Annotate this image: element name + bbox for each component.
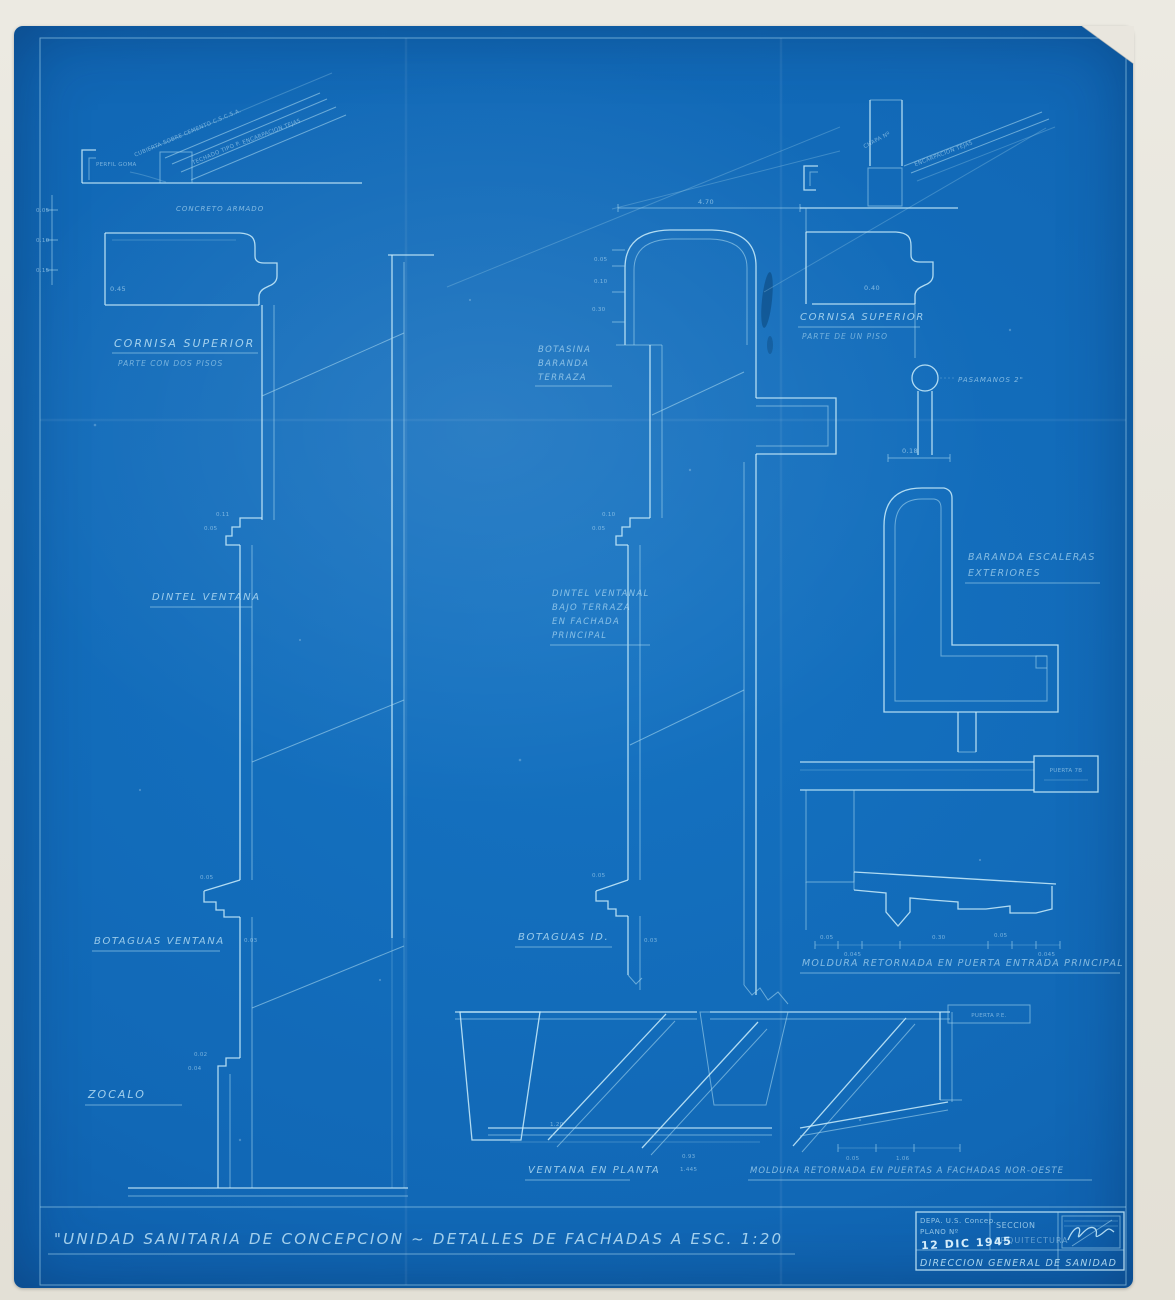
detail-title: DINTEL VENTANA [152,592,261,603]
dimension: 0.40 [864,284,880,292]
detail-stair-rail: BARANDA ESCALERAS EXTERIORES [884,488,1100,752]
detail-title: BARANDA ESCALERAS [968,552,1096,563]
dimension: 0.02 [194,1052,207,1058]
dimension: 0.03 [644,938,658,944]
detail-base-left: 0.02 0.04 ZOCALO [85,1052,408,1196]
detail-title: BOTAGUAS VENTANA [94,936,225,947]
detail-title: BOTAGUAS ID. [518,932,609,943]
dimension: 0.05 [592,873,606,879]
detail-title: BARANDA [538,359,589,369]
detail-handrail: PASAMANOS 2" 0.18 [888,304,1024,462]
roof-note: TECHADO TIPO P. [191,141,242,167]
roof-note: ENCARPACION TEJAS [914,140,974,168]
section-label: SECCION [996,1221,1035,1230]
dimension: 0.11 [216,512,229,518]
dimension: 0.93 [682,1154,696,1160]
dimension: 0.05 [592,526,606,532]
drawing-svg: CUBIERTA SOBRE CEMENTO C.S.C.S.A. TECHAD… [0,0,1175,1300]
dimension: 0.05 [994,933,1008,939]
detail-title: BOTASINA [538,345,591,355]
detail-door-molding: PUERTA 7B 0.05 0.045 0.30 0.05 0.045 MOL… [800,756,1124,973]
roof-note: CHAPA Nº [862,130,891,150]
detail-cornice-right: CHAPA Nº ENCARPACION TEJAS 0.40 CORNISA … [798,100,1055,341]
dimension: 4.70 [698,198,714,206]
paper-folds [40,38,1126,1285]
detail-title: VENTANA EN PLANTA [528,1165,660,1176]
dimension: 0.45 [110,285,126,293]
dimension: 1.445 [680,1167,697,1173]
drawing-title: "UNIDAD SANITARIA DE CONCEPCION ~ DETALL… [54,1230,784,1248]
dimension: 0.15 [36,268,50,274]
detail-title: EN FACHADA [552,617,620,627]
paper-corner-cut [1082,26,1134,64]
detail-lintel-left: 0.11 0.05 DINTEL VENTANA [150,512,262,880]
dimension: 0.03 [244,938,258,944]
detail-sill-left: 0.05 0.03 BOTAGUAS VENTANA [92,875,258,1058]
detail-nw-molding: PUERTA P.E. 0.05 1.06 MOLDURA RETORNADA … [748,1005,1092,1180]
dimension: 1.06 [896,1156,910,1162]
detail-title: EXTERIORES [968,568,1041,579]
organization: DIRECCION GENERAL DE SANIDAD [920,1258,1118,1269]
detail-subtitle: PARTE CON DOS PISOS [118,359,223,368]
detail-title: PRINCIPAL [552,631,607,641]
dimension: 0.10 [594,279,608,285]
door-tag: PUERTA 7B [1050,768,1083,774]
sheet-border [40,38,1126,1285]
detail-window-plan: 1.20 0.93 1.445 VENTANA EN PLANTA [455,1012,950,1180]
section-value: ARQUITECTURA [994,1236,1069,1245]
dimension: 0.05 [36,208,50,214]
department: DEPA. U.S. Concep. [920,1217,996,1225]
detail-title: CORNISA SUPERIOR [800,312,925,323]
door-tag: PUERTA P.E. [971,1013,1006,1019]
plan-number: PLANO Nº [920,1228,959,1236]
detail-title: TERRAZA [538,373,587,383]
blueprint-scan: CUBIERTA SOBRE CEMENTO C.S.C.S.A. TECHAD… [0,0,1175,1300]
detail-title: DINTEL VENTANAL [552,589,650,599]
sheet-title: "UNIDAD SANITARIA DE CONCEPCION ~ DETALL… [54,1230,784,1248]
dimension: 0.05 [820,935,834,941]
detail-lintel-mid: DINTEL VENTANAL BAJO TERRAZA EN FACHADA … [550,589,650,645]
gutter-label: PERFIL GOMA [96,162,137,168]
paper-specks [94,299,1082,1141]
dimension: 0.05 [846,1156,860,1162]
title-block: DEPA. U.S. Concep. PLANO Nº 12 DIC 1945 … [916,1212,1124,1270]
dimension: 0.18 [902,447,918,455]
dimension: 0.30 [592,307,606,313]
handrail-label: PASAMANOS 2" [958,376,1024,384]
detail-title: MOLDURA RETORNADA EN PUERTAS A FACHADAS … [750,1166,1064,1176]
detail-title: MOLDURA RETORNADA EN PUERTA ENTRADA PRIN… [802,958,1124,969]
dimension: 0.04 [188,1066,202,1072]
ink-stain [759,272,775,354]
detail-title: BAJO TERRAZA [552,603,631,613]
detail-sill-mid: 0.05 0.03 BOTAGUAS ID. [515,873,788,1004]
detail-subtitle: PARTE DE UN PISO [802,332,888,341]
detail-parapet-mid: 4.70 0.05 0.10 0.30 0.10 0.05 BOTASINA [535,198,836,880]
dimension: 1.20 [550,1122,564,1128]
dimension: 0.10 [36,238,50,244]
dimension: 0.30 [932,935,946,941]
detail-title: CORNISA SUPERIOR [114,337,255,350]
dimension: 0.05 [204,526,218,532]
dimension: 0.10 [602,512,616,518]
detail-title: ZOCALO [87,1088,146,1101]
material-note: CONCRETO ARMADO [176,205,264,213]
dimension: 0.05 [594,257,608,263]
dimension: 0.05 [200,875,214,881]
